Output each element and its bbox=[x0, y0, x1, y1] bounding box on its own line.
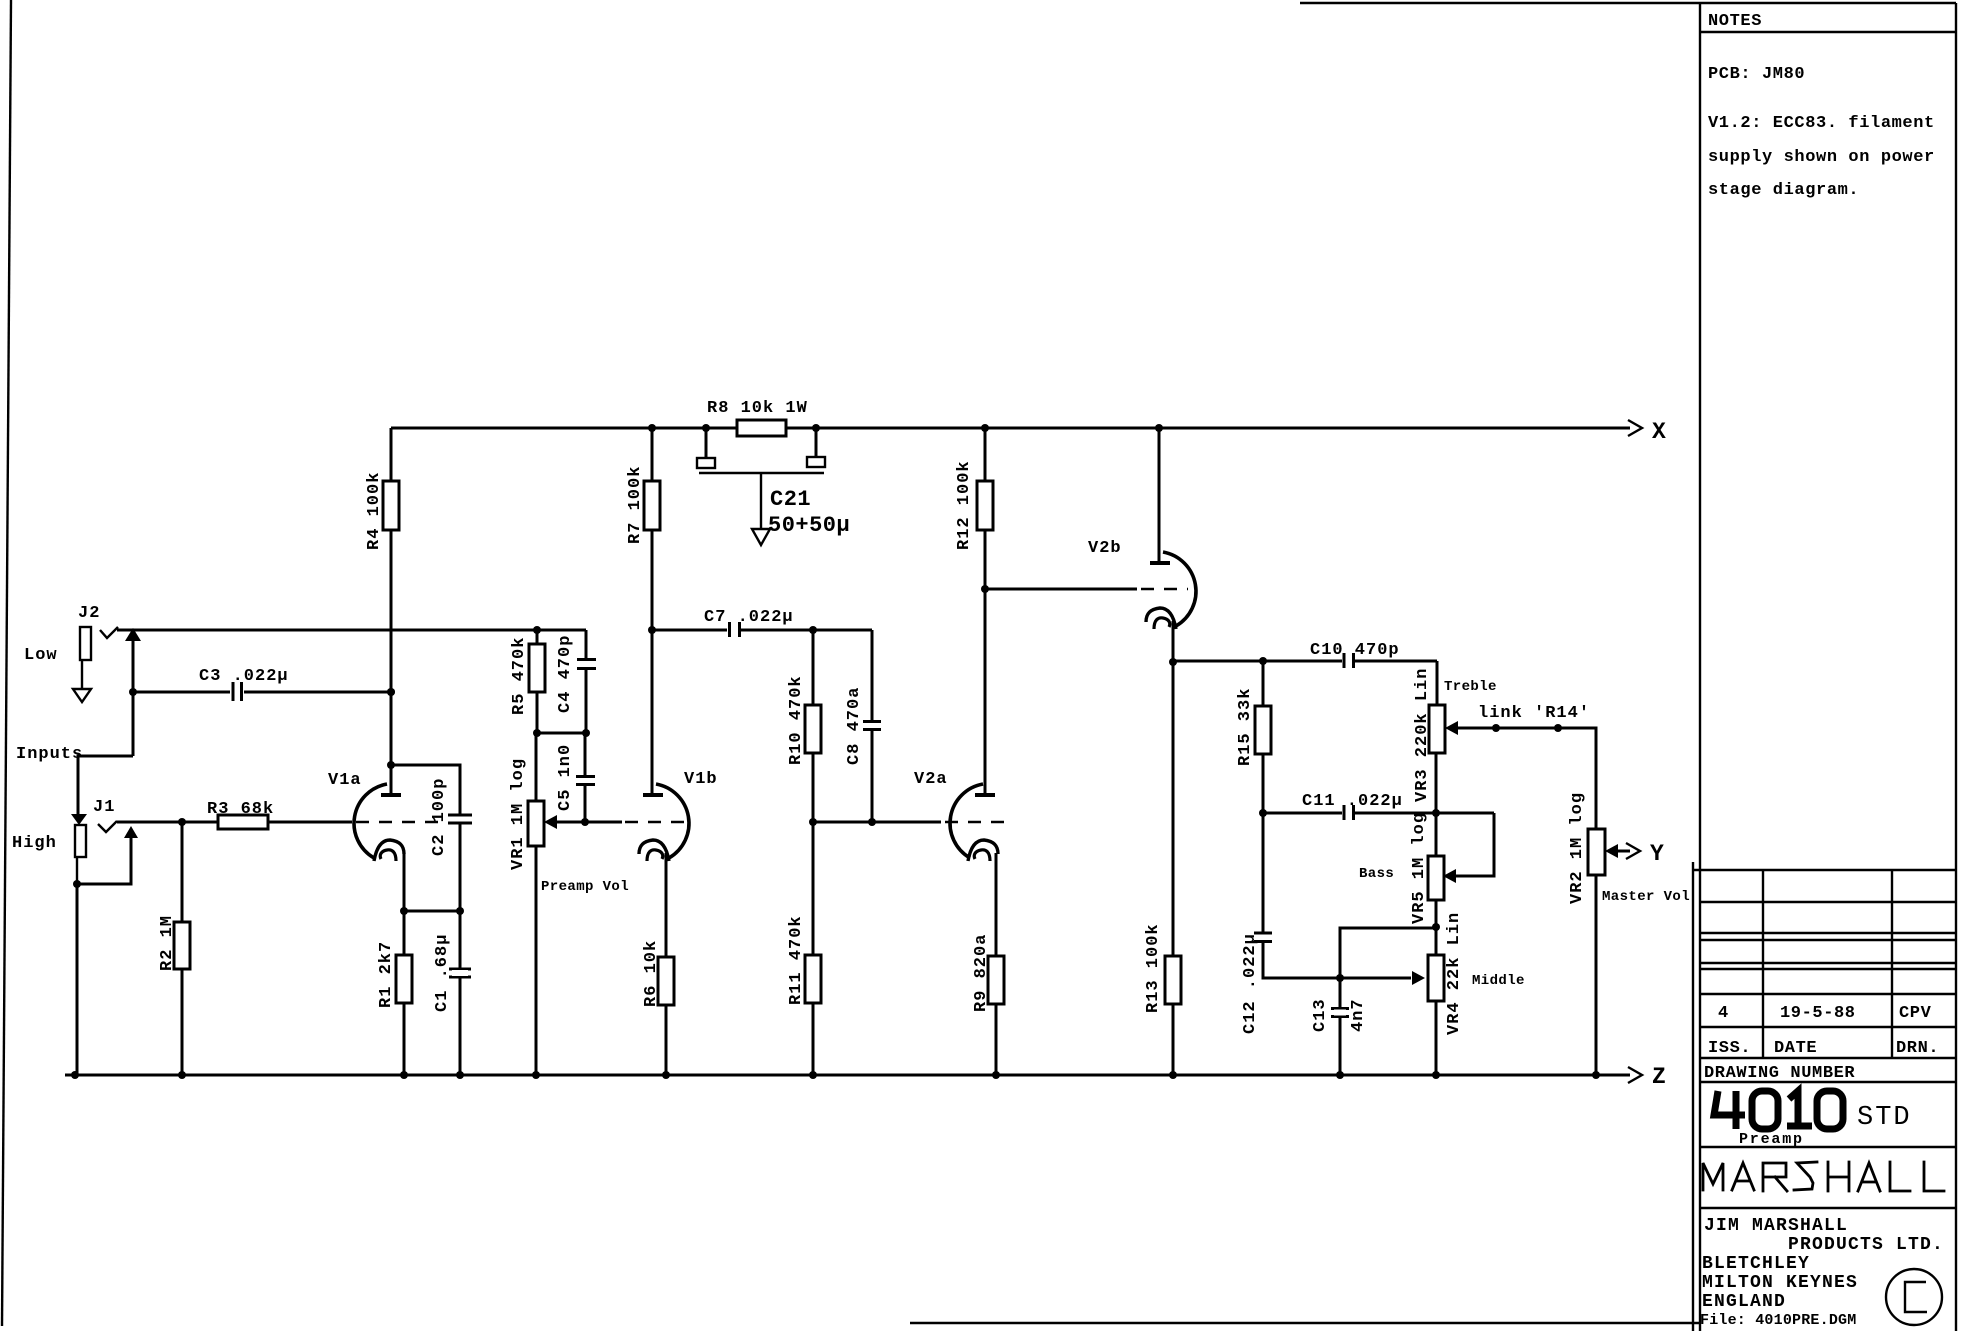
svg-text:R5 470k: R5 470k bbox=[510, 637, 529, 715]
svg-text:J1: J1 bbox=[93, 798, 115, 817]
svg-text:Treble: Treble bbox=[1444, 679, 1497, 695]
svg-text:19-5-88: 19-5-88 bbox=[1780, 1004, 1856, 1023]
svg-text:CPV: CPV bbox=[1899, 1004, 1932, 1023]
svg-text:Preamp Vol: Preamp Vol bbox=[541, 879, 629, 895]
svg-text:VR5 1M log: VR5 1M log bbox=[1410, 812, 1429, 924]
svg-text:Z: Z bbox=[1652, 1064, 1666, 1090]
svg-text:VR2 1M log: VR2 1M log bbox=[1568, 792, 1587, 904]
svg-text:C8 470a: C8 470a bbox=[845, 687, 864, 765]
svg-text:V1b: V1b bbox=[684, 770, 718, 789]
svg-text:JIM MARSHALL: JIM MARSHALL bbox=[1704, 1216, 1848, 1236]
svg-text:Preamp: Preamp bbox=[1739, 1131, 1804, 1148]
svg-text:supply shown on power: supply shown on power bbox=[1708, 148, 1935, 167]
svg-text:PRODUCTS LTD.: PRODUCTS LTD. bbox=[1788, 1235, 1944, 1255]
svg-text:R12 100k: R12 100k bbox=[955, 460, 974, 550]
svg-text:Middle: Middle bbox=[1472, 973, 1525, 989]
svg-text:R7 100k: R7 100k bbox=[626, 466, 645, 544]
svg-text:PCB: JM80: PCB: JM80 bbox=[1708, 65, 1805, 84]
svg-text:DATE: DATE bbox=[1774, 1039, 1817, 1058]
svg-text:C5 1n0: C5 1n0 bbox=[556, 744, 575, 811]
svg-text:Master Vol: Master Vol bbox=[1602, 889, 1690, 905]
svg-text:File: 4010PRE.DGM: File: 4010PRE.DGM bbox=[1700, 1312, 1856, 1329]
svg-text:R10 470k: R10 470k bbox=[787, 675, 806, 765]
svg-text:Y: Y bbox=[1650, 841, 1664, 867]
svg-text:ISS.: ISS. bbox=[1708, 1039, 1751, 1058]
svg-text:C21: C21 bbox=[770, 487, 811, 512]
svg-text:ENGLAND: ENGLAND bbox=[1702, 1292, 1786, 1312]
svg-text:link 'R14': link 'R14' bbox=[1478, 704, 1590, 723]
svg-text:Low: Low bbox=[24, 646, 58, 665]
svg-text:50+50µ: 50+50µ bbox=[768, 513, 850, 538]
svg-text:High: High bbox=[12, 834, 57, 853]
svg-text:C4 470p: C4 470p bbox=[556, 635, 575, 713]
svg-text:BLETCHLEY: BLETCHLEY bbox=[1702, 1254, 1810, 1274]
svg-text:R13 100k: R13 100k bbox=[1144, 923, 1163, 1013]
svg-text:Bass: Bass bbox=[1359, 866, 1394, 882]
svg-text:R1 2k7: R1 2k7 bbox=[377, 941, 396, 1008]
svg-text:VR4 22k Lin: VR4 22k Lin bbox=[1445, 912, 1464, 1035]
svg-text:J2: J2 bbox=[78, 604, 100, 623]
svg-text:V1a: V1a bbox=[328, 771, 362, 790]
svg-text:V1.2: ECC83. filament: V1.2: ECC83. filament bbox=[1708, 114, 1935, 133]
svg-text:C2 100p: C2 100p bbox=[430, 778, 449, 856]
svg-text:MILTON KEYNES: MILTON KEYNES bbox=[1702, 1273, 1858, 1293]
svg-text:V2b: V2b bbox=[1088, 539, 1122, 558]
svg-text:NOTES: NOTES bbox=[1708, 12, 1762, 31]
svg-text:STD: STD bbox=[1857, 1103, 1912, 1133]
svg-text:R8 10k 1W: R8 10k 1W bbox=[707, 399, 808, 418]
svg-text:4: 4 bbox=[1718, 1004, 1729, 1023]
svg-text:DRAWING NUMBER: DRAWING NUMBER bbox=[1704, 1064, 1855, 1083]
svg-text:Inputs: Inputs bbox=[16, 745, 83, 764]
svg-text:V2a: V2a bbox=[914, 770, 948, 789]
svg-text:4n7: 4n7 bbox=[1349, 998, 1368, 1032]
svg-text:DRN.: DRN. bbox=[1896, 1039, 1939, 1058]
svg-text:C12 .022µ: C12 .022µ bbox=[1241, 933, 1260, 1034]
svg-text:R15 33k: R15 33k bbox=[1236, 688, 1255, 766]
svg-text:X: X bbox=[1652, 419, 1666, 445]
svg-text:R11 470k: R11 470k bbox=[787, 915, 806, 1005]
svg-text:stage diagram.: stage diagram. bbox=[1708, 181, 1859, 200]
svg-text:C3 .022µ: C3 .022µ bbox=[199, 667, 289, 686]
svg-text:R4 100k: R4 100k bbox=[365, 472, 384, 550]
svg-text:C13: C13 bbox=[1311, 998, 1330, 1032]
svg-text:C7 .022µ: C7 .022µ bbox=[704, 608, 794, 627]
svg-text:C1 .68µ: C1 .68µ bbox=[433, 934, 452, 1012]
svg-text:VR1 1M log: VR1 1M log bbox=[509, 758, 528, 870]
